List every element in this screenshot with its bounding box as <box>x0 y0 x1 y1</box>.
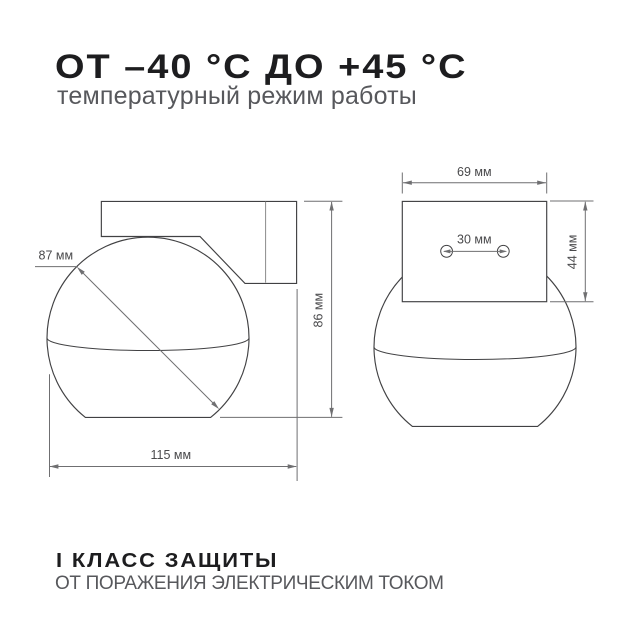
svg-text:87 мм: 87 мм <box>39 249 74 263</box>
svg-text:69 мм: 69 мм <box>457 165 492 179</box>
svg-text:44 мм: 44 мм <box>566 235 580 270</box>
svg-text:86 мм: 86 мм <box>312 293 326 328</box>
svg-text:30 мм: 30 мм <box>457 233 492 247</box>
svg-text:115 мм: 115 мм <box>151 448 192 462</box>
